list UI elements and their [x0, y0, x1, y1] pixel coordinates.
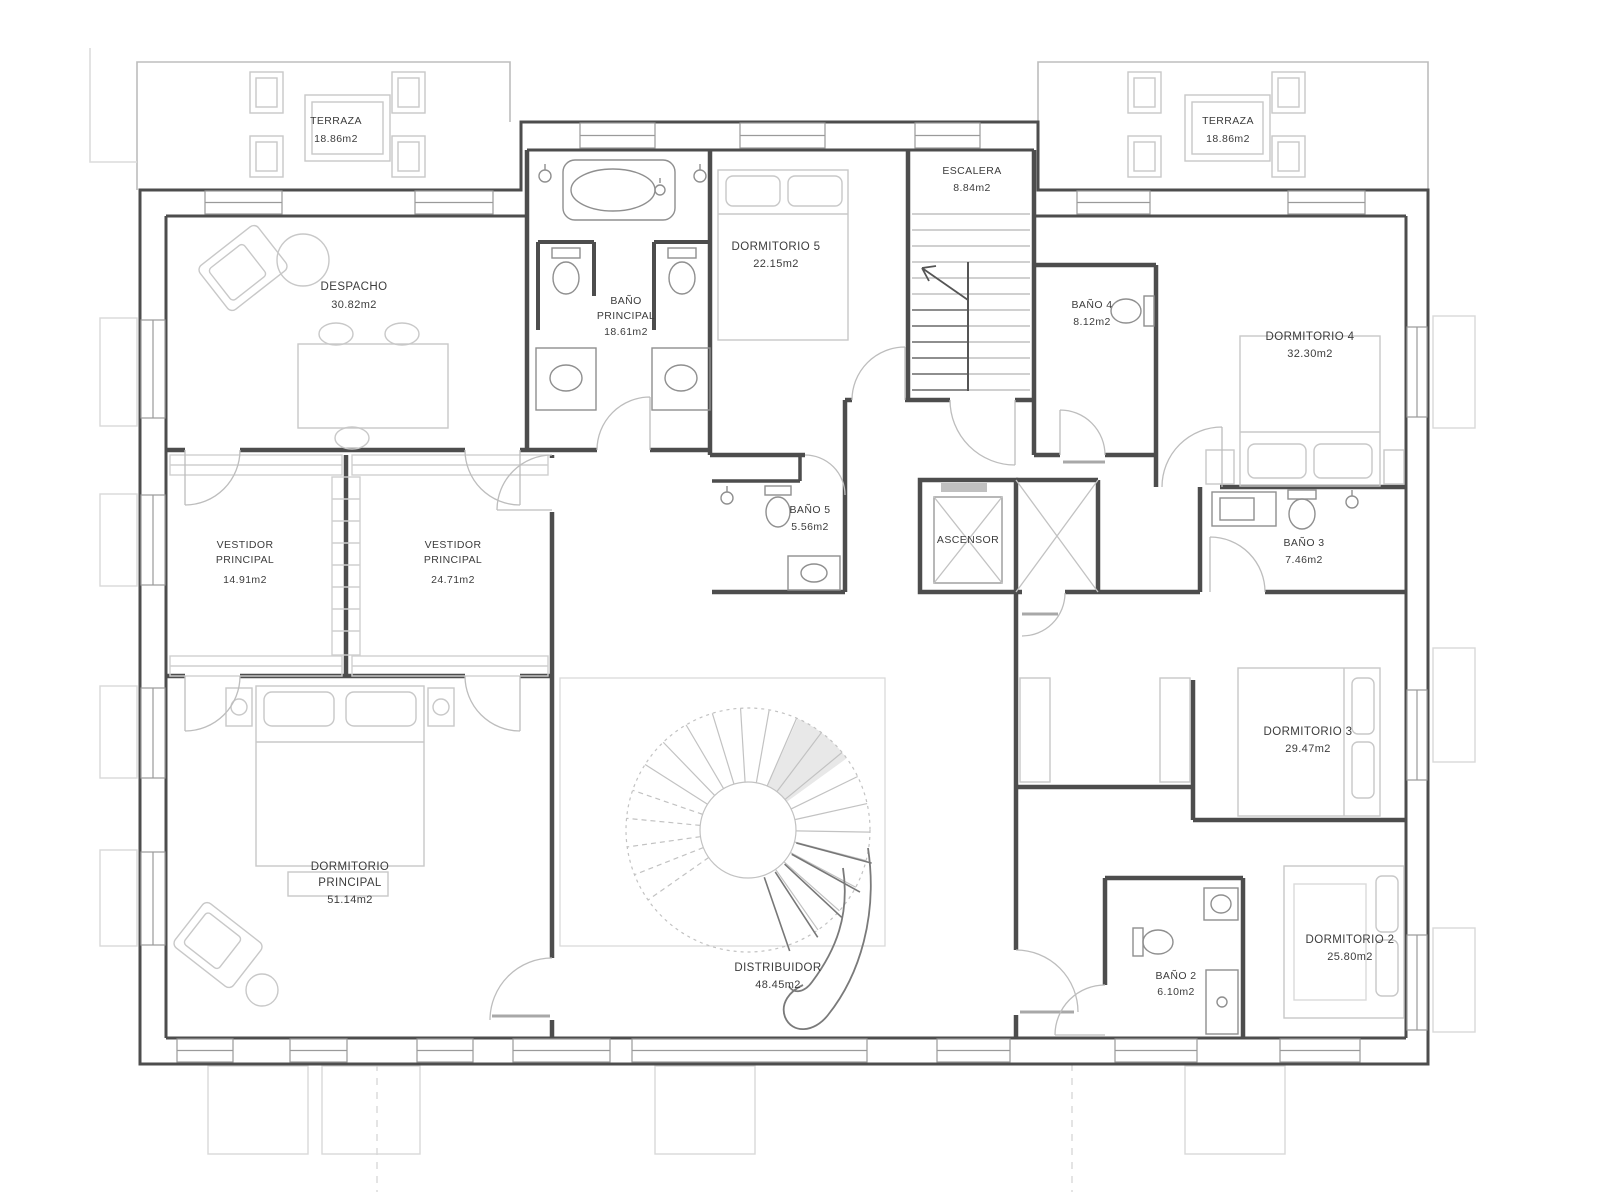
room-label-vestidor-left: VESTIDOR [217, 539, 274, 551]
nightstand [428, 688, 454, 726]
wall-lamp-icon [1346, 496, 1358, 508]
room-area-despacho: 30.82m2 [331, 299, 377, 311]
room-label-distribuidor: DISTRIBUIDOR [734, 962, 821, 974]
wc-stall-wall [538, 242, 594, 330]
bed [718, 170, 848, 340]
spiral-tread [790, 853, 855, 888]
chair [319, 323, 353, 345]
room-area-dormitorio2: 25.80m2 [1327, 951, 1373, 963]
door-despacho-left [185, 450, 240, 505]
chair [335, 427, 369, 449]
room-label-dormitorio-principal: DORMITORIO [311, 861, 390, 873]
toilet [1133, 928, 1173, 956]
property-line [90, 48, 137, 162]
room-area-distribuidor: 48.45m2 [755, 979, 801, 991]
toilet [765, 486, 791, 527]
room-label-escalera: ESCALERA [942, 165, 1001, 177]
room-area-terraza-right: 18.86m2 [1206, 133, 1250, 145]
room-label-dormitorio-principal-2: PRINCIPAL [318, 877, 382, 889]
room-area-bano4: 8.12m2 [1073, 316, 1110, 328]
chair [385, 323, 419, 345]
sink [788, 556, 840, 590]
room-label-despacho: DESPACHO [321, 281, 388, 293]
spiral-tread [712, 713, 734, 784]
door-bano3 [1210, 537, 1265, 592]
side-table [246, 974, 278, 1006]
elevator-door [941, 483, 987, 492]
spiral-tread [648, 858, 709, 900]
door-bano4 [1060, 410, 1105, 455]
staircase-straight [912, 214, 1030, 390]
room-area-terraza-left: 18.86m2 [314, 133, 358, 145]
room-label-bano5: BAÑO 5 [790, 503, 831, 516]
desk [298, 344, 448, 428]
shower [1206, 970, 1238, 1034]
closet-cross [1016, 480, 1098, 592]
room-area-dormitorio-principal: 51.14m2 [327, 894, 373, 906]
spiral-tread [645, 764, 707, 804]
room-area-dormitorio3: 29.47m2 [1285, 743, 1331, 755]
wc-stall-wall [654, 242, 710, 330]
closet [1020, 678, 1050, 782]
sink [536, 348, 596, 410]
shower-head [721, 492, 733, 504]
spiral-tread [795, 804, 867, 820]
terrace-table [305, 95, 390, 161]
room-area-bano3: 7.46m2 [1285, 554, 1322, 566]
door-dormitorio-principal [490, 958, 552, 1020]
toilet [668, 248, 696, 294]
room-label-bano3: BAÑO 3 [1284, 536, 1325, 549]
spiral-tread-dark [792, 854, 860, 892]
bed [1238, 668, 1380, 816]
door-dormitorio4 [1162, 427, 1222, 487]
room-label-bano2: BAÑO 2 [1156, 969, 1197, 982]
room-label-dormitorio3: DORMITORIO 3 [1264, 726, 1353, 738]
spiral-tread [634, 848, 703, 875]
spiral-tread [776, 869, 818, 930]
wall-lamp-icon [694, 170, 706, 182]
spiral-tread [627, 837, 700, 847]
door-dormitorio5 [852, 347, 905, 400]
wall-lamp-icon [539, 170, 551, 182]
bathroom-fixtures [536, 160, 1358, 1034]
room-label-bano-principal: BAÑO [610, 294, 641, 307]
room-area-dormitorio4: 32.30m2 [1287, 348, 1333, 360]
spiral-inner-edge [700, 782, 796, 878]
door-vestidor-hall [497, 455, 552, 510]
room-label-bano4: BAÑO 4 [1072, 298, 1113, 311]
room-label-vestidor-right-2: PRINCIPAL [424, 554, 482, 566]
door-distribuidor [1016, 950, 1078, 1012]
floor-plan: TERRAZA 18.86m2 TERRAZA 18.86m2 DESPACHO… [0, 0, 1600, 1200]
spiral-tread [686, 725, 724, 789]
spiral-tread-dark [796, 843, 871, 863]
spiral-tread [663, 742, 714, 795]
room-label-ascensor: ASCENSOR [937, 534, 999, 546]
spiral-tread [741, 708, 746, 782]
room-area-bano2: 6.10m2 [1157, 986, 1194, 998]
room-area-bano5: 5.56m2 [791, 521, 828, 533]
toilet [552, 248, 580, 294]
door-bano2 [1055, 985, 1105, 1035]
spiral-tread [784, 862, 839, 911]
room-label-dormitorio4: DORMITORIO 4 [1266, 331, 1355, 343]
vanity-sink [1212, 492, 1276, 526]
sink [1204, 888, 1238, 920]
room-label-vestidor-right: VESTIDOR [425, 539, 482, 551]
bed [256, 686, 424, 866]
door-escalera [950, 400, 1015, 465]
door-despacho-right [465, 450, 520, 505]
floor-plan-drawing: TERRAZA 18.86m2 TERRAZA 18.86m2 DESPACHO… [0, 0, 1600, 1200]
door-bano-principal [597, 397, 650, 450]
room-area-escalera: 8.84m2 [953, 182, 990, 194]
spiral-tread-dark [785, 864, 842, 917]
closet [1160, 678, 1190, 782]
side-table [277, 234, 329, 286]
room-label-dormitorio2: DORMITORIO 2 [1306, 934, 1395, 946]
spiral-tread [796, 831, 870, 832]
room-label-terraza-right: TERRAZA [1202, 115, 1254, 127]
room-area-vestidor-left: 14.91m2 [223, 574, 267, 586]
spiral-tread [627, 818, 701, 825]
armchair [197, 223, 290, 313]
stairwell-opening [560, 678, 885, 946]
door-bano5 [805, 455, 845, 495]
armchair [172, 900, 265, 990]
sink [652, 348, 710, 410]
spiral-tread [756, 710, 769, 783]
room-label-bano-principal-2: PRINCIPAL [597, 310, 655, 322]
door-vestidor-right [465, 676, 520, 731]
room-area-vestidor-right: 24.71m2 [431, 574, 475, 586]
nightstand [1206, 450, 1234, 484]
bathtub [563, 160, 675, 220]
room-label-vestidor-left-2: PRINCIPAL [216, 554, 274, 566]
room-area-dormitorio5: 22.15m2 [753, 258, 799, 270]
room-label-terraza-left: TERRAZA [310, 115, 362, 127]
room-area-bano-principal: 18.61m2 [604, 326, 648, 338]
toilet [1111, 296, 1154, 326]
terrace-table [1185, 95, 1270, 161]
room-label-dormitorio5: DORMITORIO 5 [732, 241, 821, 253]
shower-wall [712, 455, 800, 481]
staircase-spiral [626, 708, 872, 952]
toilet [1288, 490, 1316, 529]
nightstand [1384, 450, 1404, 484]
